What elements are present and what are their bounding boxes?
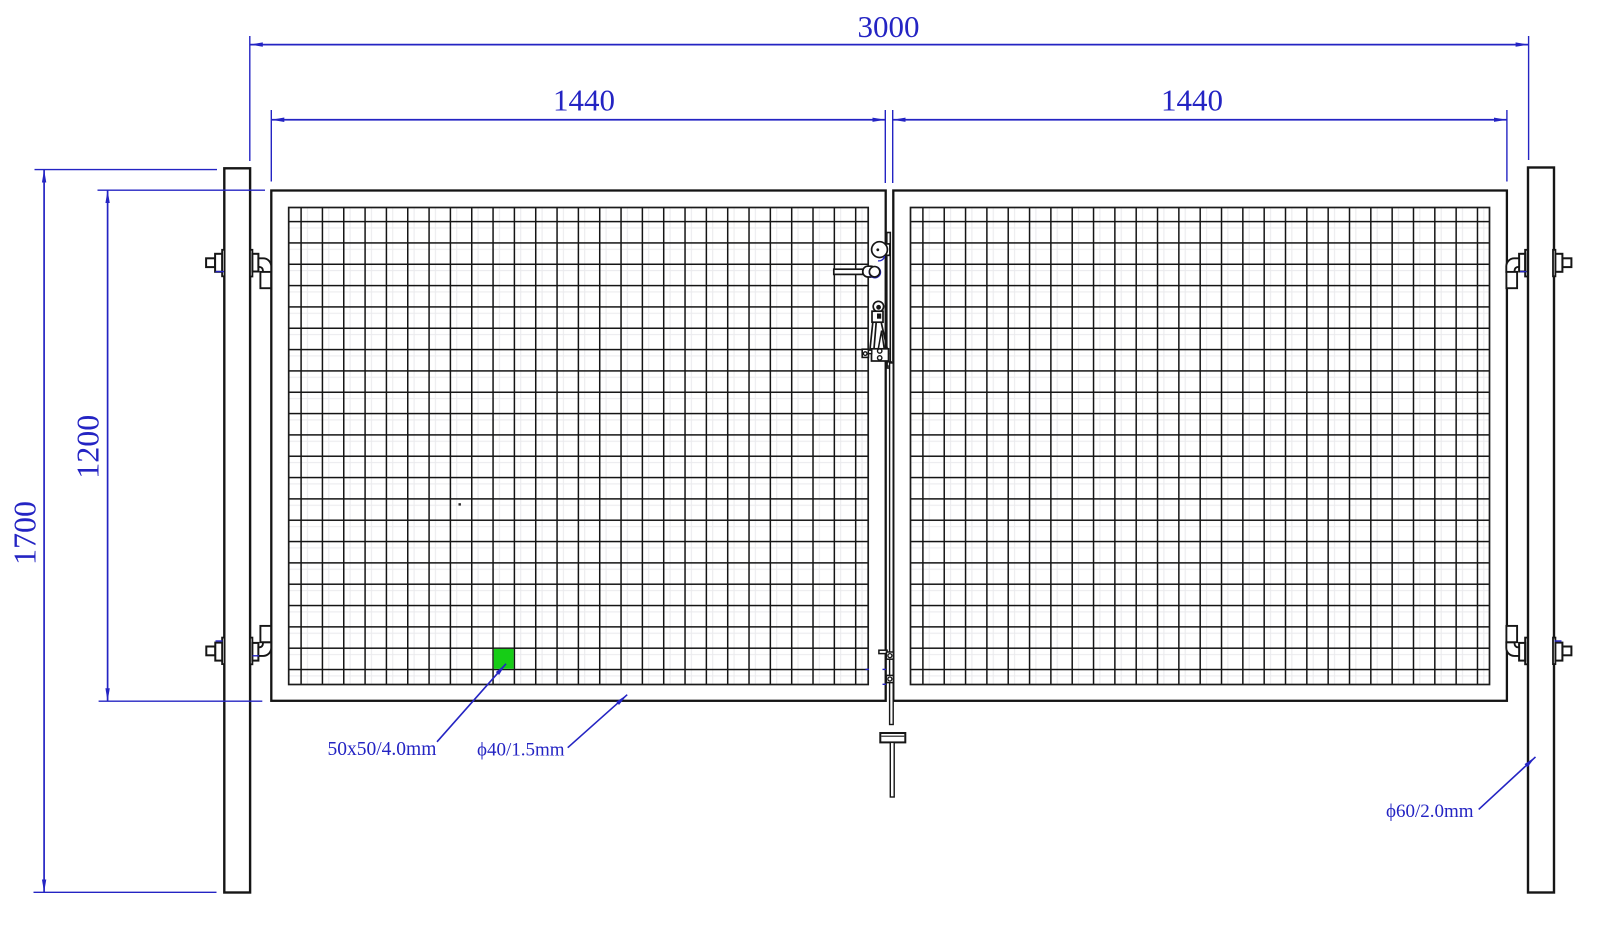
svg-text:1440: 1440 <box>553 83 615 118</box>
svg-text:3000: 3000 <box>858 9 920 44</box>
svg-text:ϕ60/2.0mm: ϕ60/2.0mm <box>1386 801 1474 822</box>
svg-text:1700: 1700 <box>7 501 43 565</box>
svg-text:1200: 1200 <box>69 415 105 479</box>
svg-text:ϕ40/1.5mm: ϕ40/1.5mm <box>477 740 565 761</box>
svg-text:1440: 1440 <box>1161 83 1223 118</box>
svg-text:50x50/4.0mm: 50x50/4.0mm <box>328 739 437 760</box>
